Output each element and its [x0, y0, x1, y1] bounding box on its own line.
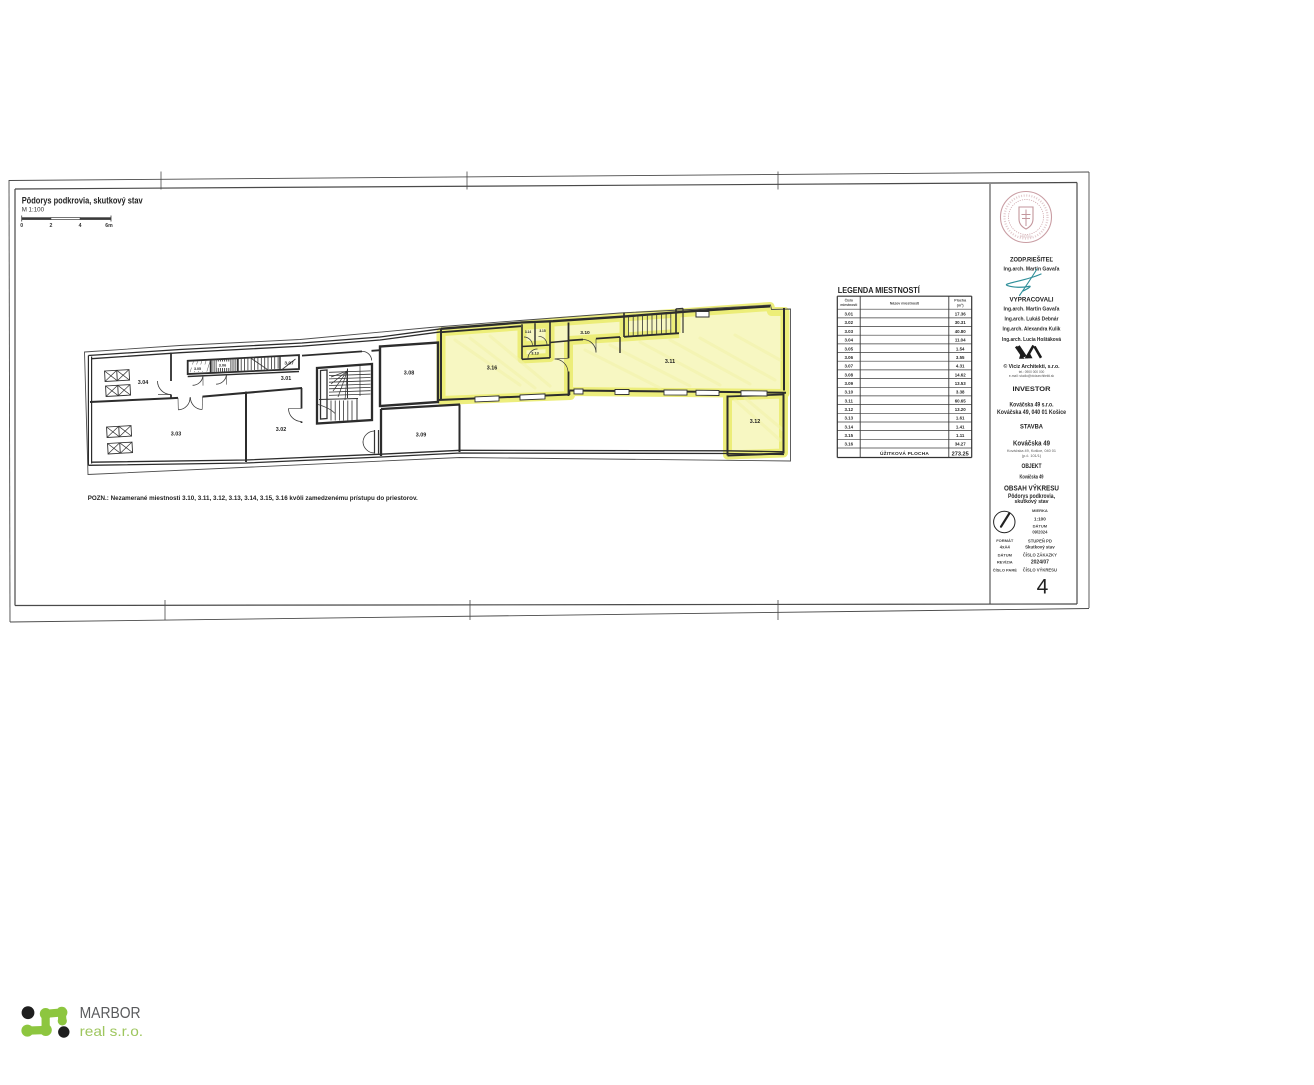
- svg-text:3.55: 3.55: [956, 355, 965, 360]
- svg-text:3.13: 3.13: [531, 351, 539, 356]
- svg-text:tel.: 0900 000 000: tel.: 0900 000 000: [1019, 370, 1045, 374]
- svg-text:Kováčska 49 s.r.o.: Kováčska 49 s.r.o.: [1010, 403, 1054, 409]
- svg-text:STUPEŇ PD: STUPEŇ PD: [1028, 538, 1052, 543]
- svg-text:Skutkový stav: Skutkový stav: [1025, 545, 1055, 550]
- svg-text:ČÍSLO PARÉ: ČÍSLO PARÉ: [993, 567, 1017, 572]
- svg-text:3.02: 3.02: [276, 427, 287, 433]
- svg-text:OBSAH VÝKRESU: OBSAH VÝKRESU: [1004, 484, 1059, 493]
- svg-text:REVÍZIA: REVÍZIA: [997, 559, 1013, 564]
- svg-text:DÁTUM: DÁTUM: [1033, 524, 1048, 529]
- svg-text:3.15: 3.15: [539, 329, 545, 333]
- svg-text:1:100: 1:100: [1034, 517, 1046, 522]
- svg-text:3.16: 3.16: [845, 442, 854, 447]
- svg-text:3.04: 3.04: [845, 338, 854, 343]
- svg-text:3.08: 3.08: [404, 371, 415, 377]
- svg-text:Číslo: Číslo: [845, 298, 853, 303]
- svg-text:e-mail: studio@vicizarchitekti: e-mail: studio@vicizarchitekti.sk: [1009, 374, 1055, 378]
- svg-text:Kováčska 49: Kováčska 49: [1013, 439, 1050, 448]
- svg-text:PREŠOV: PREŠOV: [1020, 234, 1033, 239]
- svg-text:2: 2: [49, 223, 52, 229]
- svg-text:(m²): (m²): [957, 304, 965, 308]
- svg-text:3.07: 3.07: [284, 361, 294, 367]
- svg-text:Kováčska 49: Kováčska 49: [1020, 475, 1044, 481]
- svg-text:4: 4: [1037, 576, 1049, 599]
- svg-text:Ing.arch. Alexandra Kulik: Ing.arch. Alexandra Kulik: [1003, 327, 1062, 333]
- svg-text:real s.r.o.: real s.r.o.: [80, 1024, 144, 1039]
- svg-text:3.09: 3.09: [845, 381, 854, 386]
- svg-text:3.05: 3.05: [845, 346, 854, 351]
- svg-text:skutkový stav: skutkový stav: [1015, 499, 1049, 505]
- svg-text:Pôdorys podkrovia, skutkový st: Pôdorys podkrovia, skutkový stav: [22, 196, 143, 206]
- svg-text:40.80: 40.80: [955, 329, 967, 334]
- svg-text:Kováčska 49, 040 01 Košice: Kováčska 49, 040 01 Košice: [997, 410, 1067, 416]
- svg-text:ČÍSLO VÝKRESU: ČÍSLO VÝKRESU: [1023, 567, 1057, 572]
- svg-text:Ing.arch. Martin Gavaľa: Ing.arch. Martin Gavaľa: [1004, 307, 1061, 313]
- svg-text:3.12: 3.12: [750, 419, 761, 425]
- svg-text:(p.č. 101/1): (p.č. 101/1): [1022, 454, 1042, 458]
- svg-text:4: 4: [79, 223, 82, 229]
- svg-text:3.04: 3.04: [138, 380, 149, 386]
- svg-text:3.15: 3.15: [845, 433, 854, 438]
- svg-text:1.61: 1.61: [956, 416, 965, 421]
- svg-text:4.31: 4.31: [956, 364, 965, 369]
- svg-text:Ing.arch. Lukáš Debnár: Ing.arch. Lukáš Debnár: [1005, 317, 1060, 323]
- svg-text:INVESTOR: INVESTOR: [1013, 386, 1051, 393]
- svg-text:LEGENDA MIESTNOSTÍ: LEGENDA MIESTNOSTÍ: [838, 285, 921, 295]
- svg-text:3.38: 3.38: [956, 390, 965, 395]
- svg-text:3.12: 3.12: [845, 407, 854, 412]
- svg-text:Ing.arch. Martin Gavaľa: Ing.arch. Martin Gavaľa: [1004, 267, 1061, 273]
- svg-text:3.06: 3.06: [219, 364, 226, 368]
- svg-text:6m: 6m: [105, 223, 113, 229]
- svg-text:3.06: 3.06: [845, 355, 854, 360]
- svg-text:3.03: 3.03: [845, 329, 854, 334]
- svg-text:09/2024: 09/2024: [1032, 529, 1048, 534]
- svg-text:273.25: 273.25: [952, 451, 969, 457]
- svg-text:3.11: 3.11: [665, 359, 675, 365]
- svg-text:1.11: 1.11: [956, 433, 965, 438]
- svg-text:14.62: 14.62: [955, 372, 967, 377]
- svg-text:OBJEKT: OBJEKT: [1022, 463, 1042, 470]
- svg-text:3.07: 3.07: [845, 364, 854, 369]
- svg-text:3.10: 3.10: [845, 390, 854, 395]
- svg-text:ZODP.RIEŠITEĽ: ZODP.RIEŠITEĽ: [1010, 256, 1053, 264]
- svg-text:MIERKA: MIERKA: [1032, 508, 1048, 513]
- svg-text:3.10: 3.10: [580, 330, 590, 336]
- svg-text:30.31: 30.31: [955, 320, 967, 325]
- svg-text:3.09: 3.09: [416, 433, 427, 439]
- svg-text:3.11: 3.11: [845, 398, 854, 403]
- svg-text:3.14: 3.14: [525, 330, 531, 334]
- svg-text:VYPRACOVALI: VYPRACOVALI: [1010, 297, 1054, 304]
- svg-text:17.36: 17.36: [955, 312, 967, 317]
- svg-text:1.41: 1.41: [956, 424, 965, 429]
- svg-text:Plocha: Plocha: [954, 299, 967, 303]
- svg-text:POZN.: Nezamerané miestnosti 3: POZN.: Nezamerané miestnosti 3.10, 3.11,…: [88, 495, 418, 502]
- svg-text:M 1:100: M 1:100: [22, 207, 45, 214]
- svg-text:13.20: 13.20: [955, 407, 967, 412]
- svg-text:34.27: 34.27: [955, 442, 967, 447]
- svg-text:4xA4: 4xA4: [1000, 545, 1011, 550]
- svg-text:3.13: 3.13: [845, 416, 854, 421]
- svg-text:3.08: 3.08: [845, 372, 854, 377]
- svg-text:3.16: 3.16: [487, 366, 498, 372]
- svg-text:3.02: 3.02: [845, 320, 854, 325]
- svg-text:3.05: 3.05: [194, 367, 201, 371]
- svg-text:13.53: 13.53: [955, 381, 967, 386]
- svg-text:3.01: 3.01: [281, 376, 292, 382]
- svg-text:3.01: 3.01: [845, 312, 854, 317]
- svg-text:STAVBA: STAVBA: [1020, 424, 1043, 431]
- svg-text:DÁTUM: DÁTUM: [998, 553, 1013, 558]
- svg-text:FORMÁT: FORMÁT: [996, 538, 1014, 543]
- svg-text:3.03: 3.03: [171, 432, 182, 438]
- svg-text:11.04: 11.04: [955, 338, 966, 343]
- svg-text:Kováčska 49, Košice, 040 01: Kováčska 49, Košice, 040 01: [1007, 449, 1056, 453]
- svg-text:2024/07: 2024/07: [1031, 559, 1049, 565]
- svg-text:1.54: 1.54: [956, 346, 965, 351]
- svg-text:3.14: 3.14: [845, 424, 854, 429]
- svg-text:0: 0: [20, 223, 23, 229]
- svg-text:MARBOR: MARBOR: [80, 1005, 141, 1022]
- svg-text:60.65: 60.65: [955, 398, 967, 403]
- svg-text:Ing.arch. Lucia Hoštáková: Ing.arch. Lucia Hoštáková: [1002, 337, 1062, 343]
- svg-text:miestnosti: miestnosti: [840, 303, 857, 307]
- svg-text:Názov miestnosti: Názov miestnosti: [890, 302, 920, 306]
- svg-text:ČÍSLO ZÁKAZKY: ČÍSLO ZÁKAZKY: [1023, 553, 1057, 558]
